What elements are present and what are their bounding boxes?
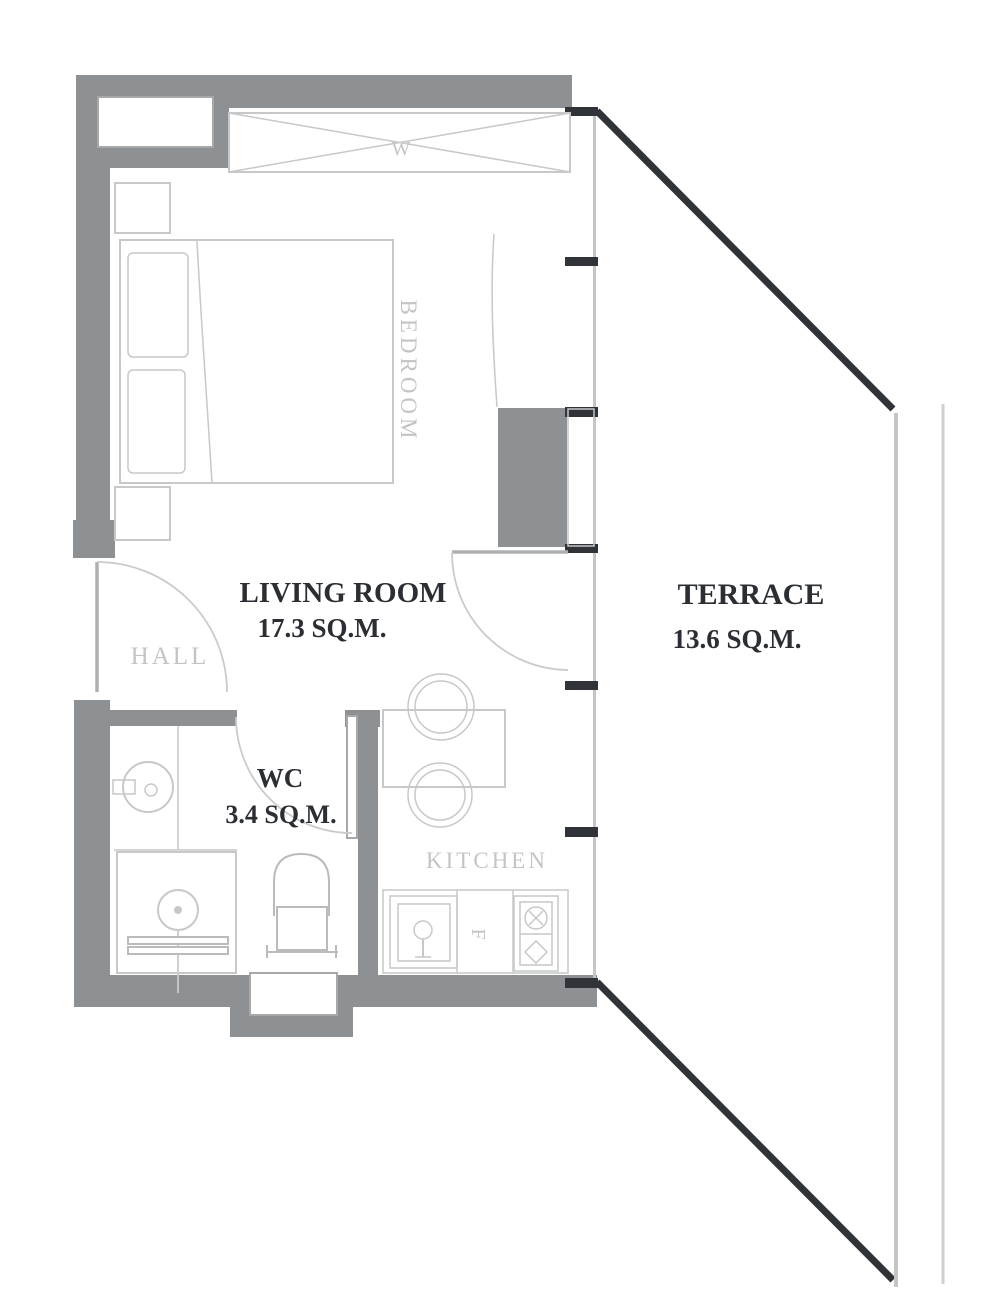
kitchen-faucet (414, 921, 432, 939)
fridge-marker: F (467, 928, 489, 939)
room-divider-line (492, 234, 497, 407)
kitchen-label: KITCHEN (426, 848, 548, 873)
facade-mullion (565, 827, 598, 837)
facade-mullion (565, 681, 598, 690)
shower-bench-rail (128, 937, 228, 944)
wc-door-leaf (347, 716, 357, 838)
facade (565, 107, 598, 988)
wall-left-upper (76, 168, 110, 558)
shower-bench-rail (128, 947, 228, 954)
facade-mullion (565, 978, 598, 988)
dining-chair (408, 674, 474, 740)
dining-chair (408, 763, 472, 827)
window-niche-top-left (98, 97, 213, 147)
dining-chair-seat (415, 681, 467, 733)
hall-label: HALL (131, 643, 210, 670)
wall-left-hall-cap (73, 520, 115, 558)
nightstand-top (115, 183, 170, 233)
toilet-tank (277, 907, 327, 950)
terrace-door-swing-arc (452, 553, 568, 670)
wc-fixtures (113, 726, 338, 993)
shower-head-center (174, 906, 182, 914)
wall-wc-top-left (110, 710, 237, 726)
floor-plan-drawing: LIVING ROOM 17.3 SQ.M. TERRACE 13.6 SQ.M… (0, 0, 997, 1300)
wall-left-lower (74, 700, 110, 1007)
stove-burner (525, 941, 547, 963)
washbasin-drain (145, 784, 157, 796)
living-room-label: LIVING ROOM (239, 577, 446, 609)
service-niche-bottom (250, 973, 337, 1015)
wardrobe-marker: W (392, 138, 411, 160)
terrace-top-edge (597, 111, 893, 409)
bedroom-label: BEDROOM (396, 299, 421, 442)
wall-wc-right (358, 712, 378, 975)
facade-mullion (565, 257, 598, 266)
dining-chair-seat (415, 770, 465, 820)
wc-label: WC (257, 763, 304, 793)
dining-table (383, 710, 505, 787)
shaft-side-panel (568, 409, 594, 546)
washbasin (123, 762, 173, 812)
wc-area: 3.4 SQ.M. (225, 800, 336, 829)
entrance-door-swing-arc (97, 562, 227, 692)
terrace-label: TERRACE (678, 578, 825, 611)
terrace-bottom-edge (597, 982, 893, 1280)
bed (120, 240, 393, 483)
nightstand-bottom (115, 487, 170, 540)
terrace-boundary (597, 111, 943, 1287)
shaft-column (498, 408, 567, 547)
terrace-area: 13.6 SQ.M. (672, 624, 801, 654)
wall-top (229, 75, 572, 108)
floor-plan: LIVING ROOM 17.3 SQ.M. TERRACE 13.6 SQ.M… (0, 0, 997, 1300)
living-room-area: 17.3 SQ.M. (257, 613, 386, 643)
